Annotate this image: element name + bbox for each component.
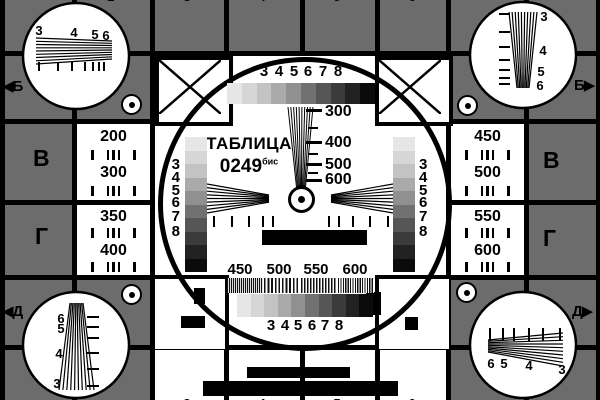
wedge-mark: 400: [325, 134, 352, 151]
grid-line-v: [0, 0, 5, 400]
scale-label: 8: [166, 224, 180, 240]
frequency-value: 500: [474, 164, 501, 181]
scale-label: 8: [330, 64, 346, 80]
left-panel-row-g: 350 400: [77, 205, 150, 275]
wedge-label: 3: [53, 376, 60, 391]
wedge-label: 5: [500, 356, 507, 371]
scale-label: 8: [419, 224, 435, 240]
top-digit-strip: 2 3 4 5 6: [0, 0, 600, 4]
frequency-value: 350: [100, 208, 127, 225]
row-label-g-right: Г: [543, 226, 556, 250]
wedge-tick: [308, 153, 318, 155]
center-target-icon: [288, 186, 315, 213]
convergence-target-icon: [456, 282, 477, 303]
scale-label: 3: [256, 64, 272, 80]
grid-line-v: [224, 0, 229, 56]
burst-mark: 500: [262, 262, 296, 278]
wedge-label: 5: [57, 321, 64, 336]
wedge-tick: [306, 163, 322, 166]
grid-digit: 6: [404, 0, 420, 3]
frequency-value: 200: [100, 128, 127, 145]
grid-line-v: [375, 0, 380, 56]
convergence-target-icon: [121, 94, 142, 115]
scale-tick: [248, 216, 250, 227]
wedge-label: 5: [91, 27, 98, 42]
scale-tick: [213, 216, 215, 227]
right-panel-row-g: 550 600: [451, 205, 524, 275]
frequency-burst: [227, 278, 263, 293]
wedge-label: 4: [55, 346, 63, 361]
grayscale-staircase-left: [185, 137, 207, 272]
scale-label: 8: [331, 318, 347, 334]
wedge-label: 4: [525, 358, 533, 373]
card-number: 0249бис: [205, 156, 293, 178]
scale-tick: [262, 216, 264, 227]
card-title: ТАБЛИЦА: [205, 134, 293, 154]
scale-tick: [272, 216, 274, 227]
burst-mark: 550: [299, 262, 333, 278]
wedge-label: 6: [536, 78, 543, 93]
row-label-v-left: В: [33, 146, 50, 170]
wedge-tick: [308, 127, 318, 129]
tick-pattern: [465, 186, 510, 196]
tick-pattern: [465, 228, 510, 238]
wedge-label: 4: [539, 43, 547, 58]
wedge-label: 3: [558, 362, 565, 377]
card-number-suffix: бис: [262, 157, 278, 167]
scale-tick: [387, 216, 389, 227]
grayscale-staircase-right: [393, 137, 415, 272]
corner-circle-top-left: 3 4 5 6: [20, 0, 132, 112]
scale-tick: [369, 216, 371, 227]
black-marker: [405, 317, 418, 330]
grid-line-v: [300, 0, 305, 56]
corner-circle-bottom-right: 6 5 4 3: [467, 289, 579, 400]
tick-pattern: [91, 228, 136, 238]
frequency-burst: [338, 278, 374, 293]
scale-label: 6: [300, 64, 316, 80]
convergence-target-icon: [457, 95, 478, 116]
grid-digit: 3: [179, 0, 195, 3]
scale-label: 7: [315, 64, 331, 80]
grid-line-h: [446, 275, 600, 280]
frequency-value: 600: [474, 242, 501, 259]
wedge-label: 6: [487, 356, 494, 371]
wedge-label: 5: [537, 64, 544, 79]
wedge-tick: [306, 141, 322, 144]
wedge-tick: [306, 109, 322, 112]
grid-digit: 5: [329, 0, 345, 3]
grayscale-staircase-top: [227, 83, 375, 104]
wedge-tick: [308, 172, 318, 174]
burst-mark: 450: [223, 262, 257, 278]
frequency-value: 550: [474, 208, 501, 225]
left-panel-row-v: 200 300: [77, 124, 150, 200]
scale-tick: [338, 216, 340, 227]
grid-line-h: [0, 275, 155, 280]
frequency-value: 400: [100, 242, 127, 259]
tick-pattern: [465, 262, 510, 272]
scale-tick: [328, 216, 330, 227]
corner-circle-top-right: 3 4 5 6: [467, 0, 579, 111]
tv-test-card: 3 4 5 6 7 8 300 400 500 600 ТАБЛИЦА 0249…: [0, 0, 600, 400]
wedge-label: 3: [540, 9, 547, 24]
scale-tick: [231, 216, 233, 227]
tick-pattern: [91, 186, 136, 196]
wedge-label: 3: [35, 23, 42, 38]
burst-mark: 600: [338, 262, 372, 278]
wedge-label: 6: [102, 28, 109, 43]
tick-pattern: [91, 262, 136, 272]
corner-circle-bottom-left: 6 5 4 3: [20, 289, 132, 400]
grid-line-v: [596, 0, 600, 400]
convergence-target-icon: [121, 284, 142, 305]
sync-bar-short: [247, 367, 350, 378]
tick-pattern: [91, 150, 136, 160]
scale-tick: [352, 216, 354, 227]
frequency-burst: [264, 278, 300, 293]
sync-bar-long: [203, 381, 398, 396]
grid-digit: 4: [254, 0, 270, 3]
row-label-v-right: В: [543, 148, 560, 172]
wedge-label: 4: [70, 25, 78, 40]
card-number-main: 0249: [220, 156, 262, 177]
reference-bar: [262, 230, 367, 245]
frequency-burst: [301, 278, 337, 293]
black-marker: [181, 316, 205, 328]
wedge-mark: 300: [325, 103, 352, 120]
grid-digit: 2: [103, 0, 119, 3]
grayscale-staircase-bottom: [237, 294, 373, 317]
frequency-value: 300: [100, 164, 127, 181]
frequency-value: 450: [474, 128, 501, 145]
row-label-g-left: Г: [35, 224, 48, 248]
right-panel-row-v: 450 500: [451, 124, 524, 200]
scale-label: 4: [271, 64, 287, 80]
tick-pattern: [465, 150, 510, 160]
